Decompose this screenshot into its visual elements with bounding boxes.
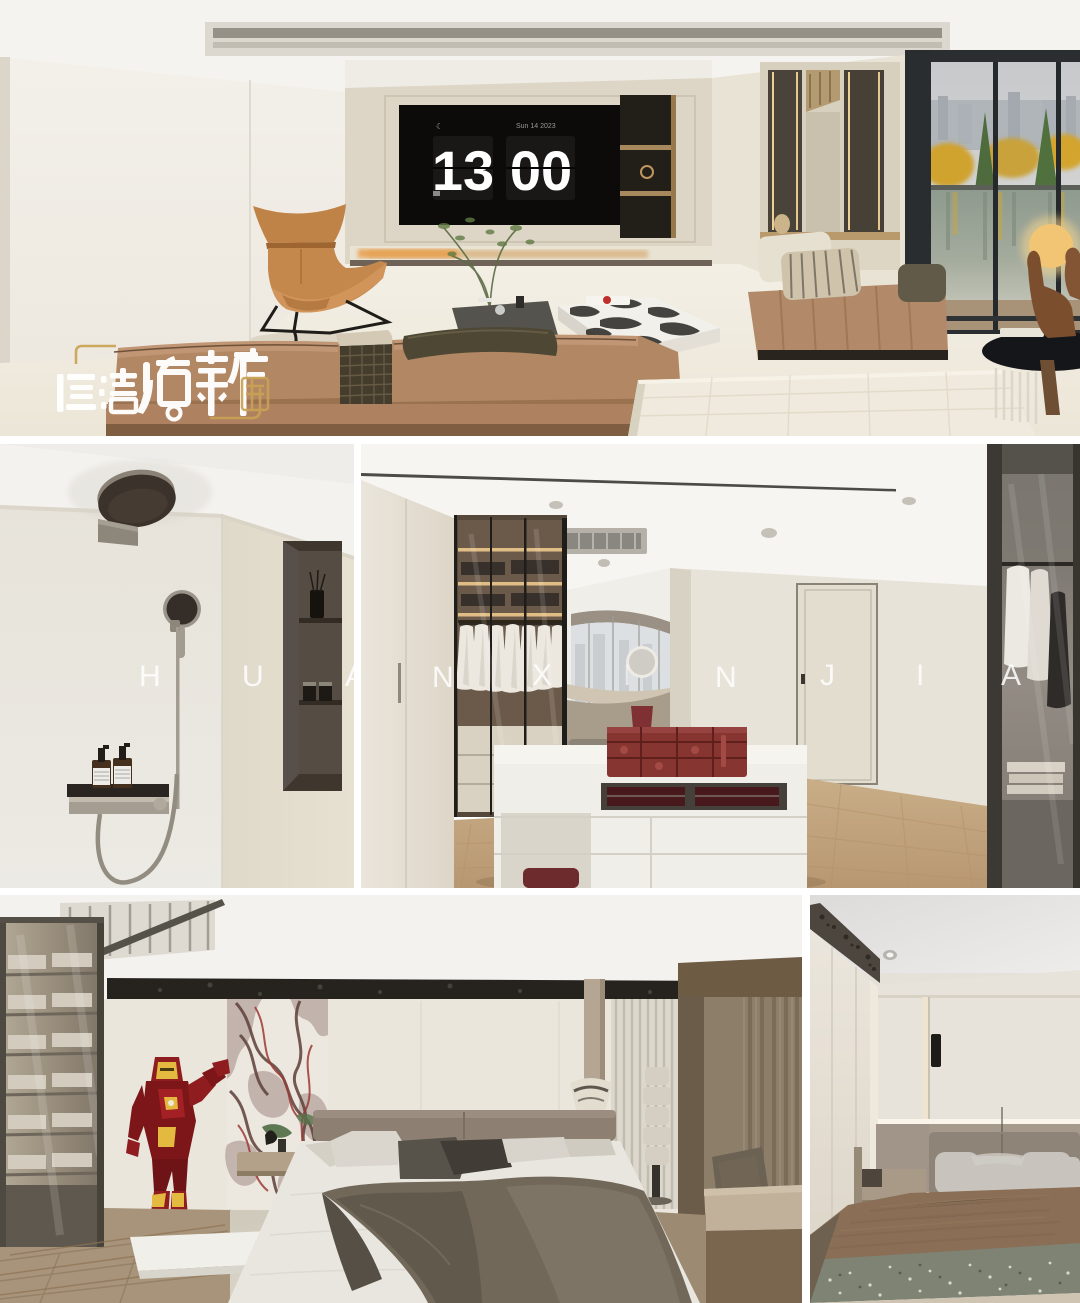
svg-text:N: N [432, 661, 454, 694]
svg-text:I: I [623, 659, 631, 692]
svg-text:J: J [820, 659, 835, 692]
svg-text:13: 13 [432, 139, 494, 202]
svg-text:A: A [345, 660, 354, 693]
svg-text:A: A [1001, 659, 1021, 692]
svg-text:N: N [715, 661, 737, 694]
svg-text:Sun 14 2023: Sun 14 2023 [516, 123, 556, 130]
svg-text:☾: ☾ [436, 122, 443, 131]
svg-text:U: U [242, 660, 264, 693]
svg-text:00: 00 [510, 139, 572, 202]
svg-text:H: H [139, 660, 161, 693]
svg-text:I: I [916, 659, 924, 692]
svg-text:X: X [532, 659, 552, 692]
